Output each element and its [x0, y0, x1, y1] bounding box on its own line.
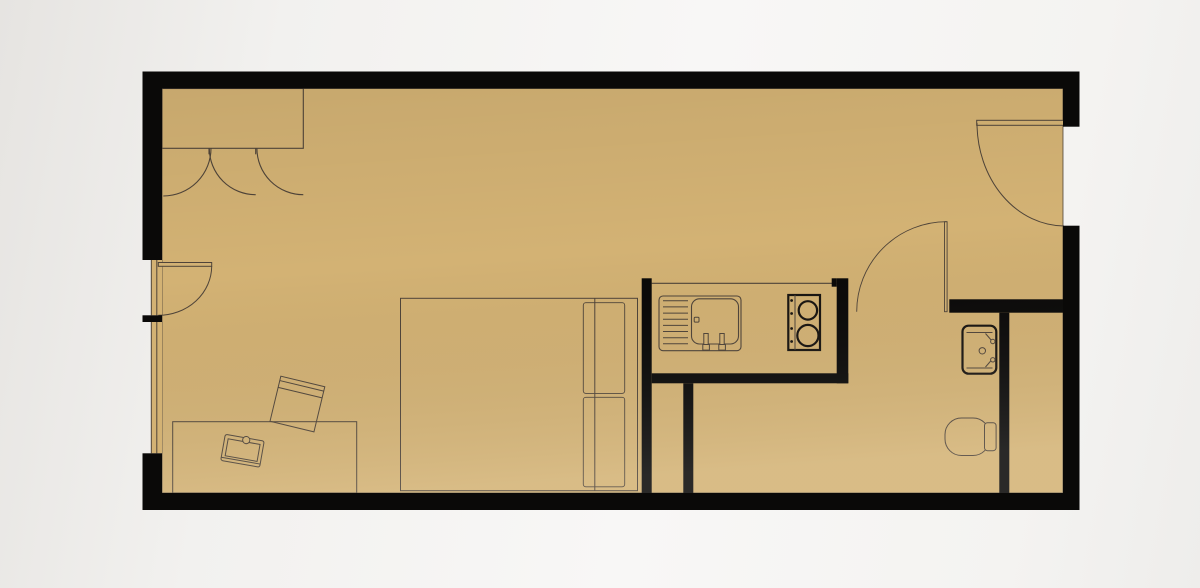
wall-right-upper	[1063, 72, 1080, 127]
floor-lighting-overlay	[162, 89, 1063, 494]
floorplan-canvas	[0, 0, 1200, 588]
plan-root	[143, 72, 1080, 511]
wall-bottom	[143, 493, 1080, 510]
wall-left-mid-block	[143, 315, 163, 322]
floorplan-svg	[0, 0, 1200, 588]
wall-left-upper	[143, 72, 163, 261]
wall-top	[143, 72, 1080, 89]
left-wall-openings	[151, 260, 162, 453]
wall-right-lower	[1063, 226, 1080, 510]
